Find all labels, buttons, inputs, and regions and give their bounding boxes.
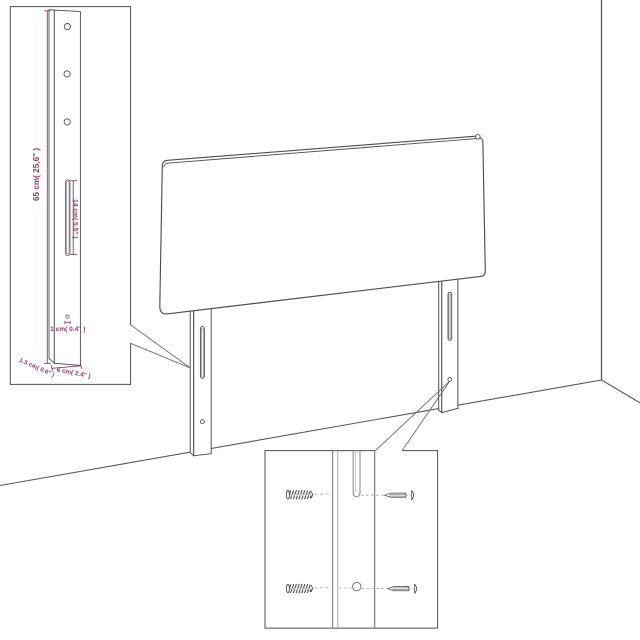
svg-text:14 cm( 5.5″ ): 14 cm( 5.5″ ) [72,199,79,239]
svg-text:65 cm( 25,6″ ): 65 cm( 25,6″ ) [32,148,41,201]
svg-text:1 cm( 0.4″ ): 1 cm( 0.4″ ) [50,326,85,333]
